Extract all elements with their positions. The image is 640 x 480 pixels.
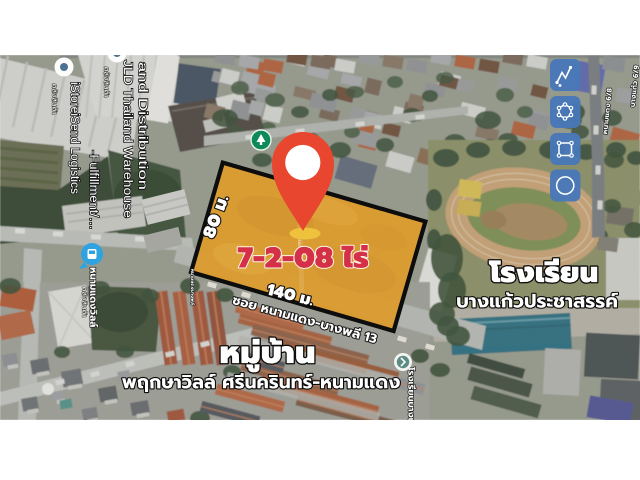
svg-text:-Fulfillment/…: -Fulfillment/…	[87, 150, 99, 230]
svg-text:iStoreiSend Logistics: iStoreiSend Logistics	[68, 82, 80, 194]
svg-text:and Distribution: and Distribution	[136, 62, 148, 190]
svg-text:JLD Thailand Warehouse: JLD Thailand Warehouse	[121, 60, 133, 218]
